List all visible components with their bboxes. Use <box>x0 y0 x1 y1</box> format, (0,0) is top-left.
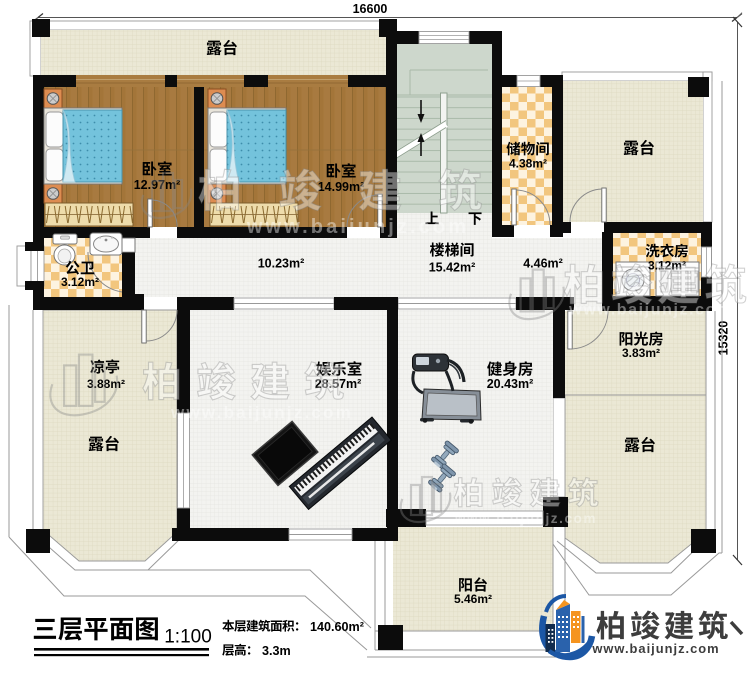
svg-text:3.12m²: 3.12m² <box>61 275 99 289</box>
svg-text:4.46m²: 4.46m² <box>523 256 563 270</box>
svg-text:15320: 15320 <box>716 321 730 356</box>
svg-text:5.46m²: 5.46m² <box>454 592 492 606</box>
svg-text:10.23m²: 10.23m² <box>258 256 305 270</box>
svg-text:www.baijunjz.com: www.baijunjz.com <box>454 511 597 526</box>
svg-text:www.baijunjz.com: www.baijunjz.com <box>246 216 469 238</box>
svg-text:www.baijunjz.com: www.baijunjz.com <box>591 641 719 656</box>
svg-text:3.83m²: 3.83m² <box>622 346 660 360</box>
svg-text:15.42m²: 15.42m² <box>429 260 476 274</box>
svg-text:16600: 16600 <box>353 2 388 16</box>
svg-text:www.baijunjz.com: www.baijunjz.com <box>170 403 353 422</box>
svg-text:140.60m²: 140.60m² <box>310 620 364 634</box>
svg-text:14.99m²: 14.99m² <box>318 180 365 194</box>
svg-text:3.3m: 3.3m <box>262 644 291 658</box>
svg-text:1:100: 1:100 <box>164 627 212 648</box>
svg-text:20.43m²: 20.43m² <box>487 377 534 391</box>
svg-text:4.38m²: 4.38m² <box>509 157 547 171</box>
svg-text:www.baijunjz.com: www.baijunjz.com <box>568 302 733 319</box>
